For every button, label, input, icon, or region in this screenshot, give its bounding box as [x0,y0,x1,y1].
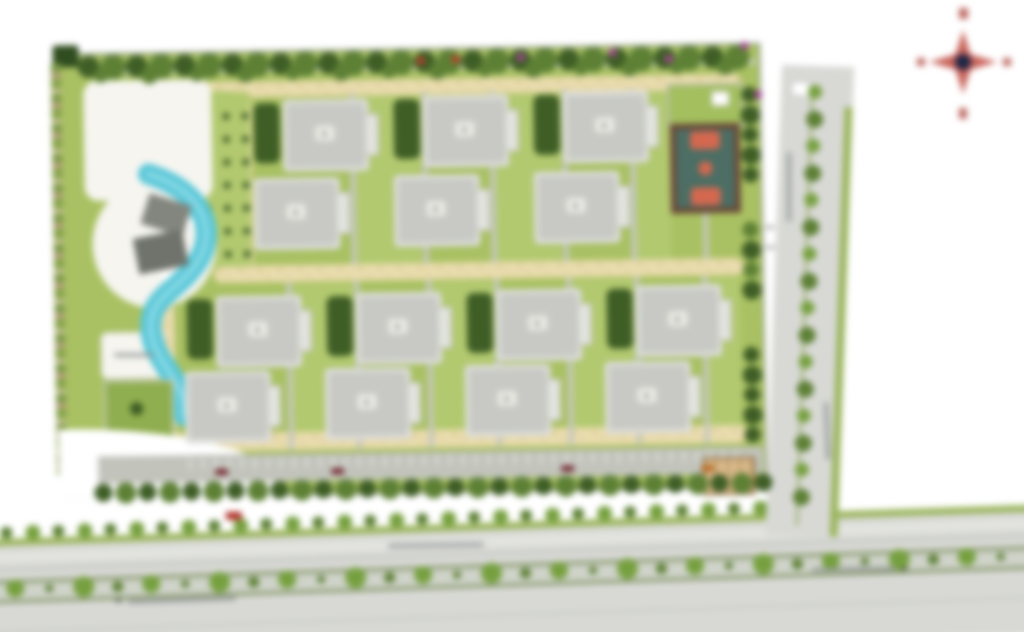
parking-stall-line [644,451,646,462]
compass-hub [955,54,971,70]
parking-stall-line [280,457,282,468]
tree-icon [138,483,156,501]
parking-stall-line [228,458,230,469]
tree-cluster [606,289,633,349]
entrance-lobby [577,303,593,345]
entrance-lobby [437,306,453,348]
tree-icon [731,472,752,493]
tree-icon [332,63,349,80]
parking-stall-line [371,456,373,467]
tree-icon [446,478,464,496]
parking-stall-line [319,456,321,467]
compass-rose-icon [915,8,1015,120]
roof-vent [322,131,327,136]
road-label-blurred [787,152,791,222]
tree-icon [643,474,664,495]
tree-icon [490,477,508,495]
parking-stall-line [436,455,438,466]
residential-building [563,91,648,162]
residential-building [395,175,480,246]
residential-building [356,293,441,364]
residential-building [186,371,271,442]
parked-car [701,465,714,471]
roof-vent [255,327,260,332]
entrance-lobby [335,192,351,234]
roof-vent [224,403,229,408]
roof-vent [462,127,467,132]
tree-icon [754,473,772,491]
tree-icon [379,478,400,499]
roof-vent [433,207,438,212]
tree-cluster [186,299,213,359]
parking-stall-line [566,453,568,464]
parking-stall-line [592,452,594,463]
parking-stall-line [293,457,295,468]
roof-vent [395,324,400,329]
parking-stall-line [449,454,451,465]
parking-stall-line [215,458,217,469]
residential-building [216,296,301,367]
entrance-lobby [546,379,562,421]
tree-icon [741,145,760,164]
residential-building [326,368,411,439]
flower-bed [517,53,525,61]
site-plan-image: ►◄ [0,0,1024,632]
tree-icon [555,475,576,496]
parking-stall-line [241,458,243,469]
residential-building [605,362,690,433]
tree-icon [226,482,244,500]
parking-stall-line [579,452,581,463]
parking-stall-line [475,454,477,465]
entrance-lobby [406,382,422,424]
tree-icon [599,474,620,495]
parking-stall-line [189,458,191,469]
roof-vent [602,123,607,128]
parked-car [561,465,574,471]
court-lawn [667,83,744,128]
tree-icon [524,60,541,77]
parking-stall-line [267,457,269,468]
tree-cluster [326,296,353,356]
flower-bed [452,55,460,63]
parking-stall-line [553,453,555,464]
parking-stall-line [397,455,399,466]
entrance-lobby [364,113,380,155]
tree-cluster [393,99,420,159]
tree-icon [478,63,492,77]
residential-building [255,178,340,249]
parking-stall-line [540,453,542,464]
residential-building [534,172,619,243]
parking-stall-line [488,454,490,465]
parking-stall-line [696,451,698,462]
parking-stall-line [527,453,529,464]
flower-bed [609,49,617,57]
tree-icon [314,480,332,498]
parking-stall-line [332,456,334,467]
parking-stall-line [358,456,360,467]
flower-bed [417,57,425,65]
flower-bed [740,42,748,50]
residential-building [423,95,508,166]
tree-icon [140,66,157,83]
parked-car [226,512,242,520]
dimension-tick [766,246,775,248]
parking-stall-line [423,455,425,466]
tree-cluster [533,95,560,155]
tree-icon [115,482,136,503]
parked-car [215,469,228,475]
parking-stall-line [306,457,308,468]
roof-vent [535,321,540,326]
roof-vent [293,210,298,215]
entrance-lobby [716,299,732,341]
tree-icon [578,476,596,494]
entrance-lobby [686,375,702,417]
dimension-tick [765,226,774,228]
parking-stall-line [631,452,633,463]
tree-icon [740,105,759,124]
entrance-lobby [503,109,519,151]
tree-icon [94,69,108,83]
parking-stall-line [202,458,204,469]
tree-icon [203,480,224,501]
residential-building [636,285,721,356]
tree-icon [666,475,684,493]
tree-icon [742,280,761,299]
tree-icon [182,482,200,500]
tree-icon [236,65,253,82]
entrance-lobby [643,105,659,147]
roof-vent [504,396,509,401]
residential-building [466,365,551,436]
tree-icon [159,481,180,502]
tree-icon [130,402,143,415]
tree-icon [742,365,761,384]
tree-icon [511,476,532,497]
tree-icon [358,480,376,498]
blurred-scene: ►◄ [0,0,1024,632]
parking-stall-line [670,451,672,462]
parking-stall-line [254,457,256,468]
roof-vent [675,317,680,322]
parking-stall-line [514,453,516,464]
tree-icon [94,484,112,502]
entrance-lobby [266,385,282,427]
parking-stall-line [683,451,685,462]
flower-bed [754,90,762,98]
road-label-blurred [114,353,154,357]
tree-icon [428,62,445,79]
tree-icon [716,57,733,74]
parking-stall-line [618,452,620,463]
entrance-lobby [615,186,631,228]
flower-bed [665,55,673,63]
tree-icon [622,475,640,493]
tree-cluster [253,103,280,163]
roof-vent [364,400,369,405]
tree-icon [423,477,444,498]
tree-icon [247,480,268,501]
tree-cluster [466,293,493,353]
tree-icon [687,473,708,494]
tree-icon [620,59,637,76]
parking-stall-line [501,454,503,465]
compass-letter-east [1003,58,1011,66]
parking-stall-line [384,455,386,466]
tree-icon [291,479,312,500]
roof-vent [573,203,578,208]
tree-icon [534,477,552,495]
tree-icon [402,479,420,497]
residential-site [0,0,1024,632]
roof-vent [644,393,649,398]
tree-icon [741,240,760,259]
tree-icon [335,478,356,499]
court-equipment-room [711,91,729,106]
parking-stall-line [605,452,607,463]
court-center-circle [698,161,712,175]
tree-icon [743,405,762,424]
parking-stall-line [462,454,464,465]
court-key-bottom [691,187,721,205]
entrance-lobby [475,189,491,231]
residential-building [496,289,581,360]
parked-car [331,468,344,474]
parking-stall-line [410,455,412,466]
compass-letter-south [959,108,967,119]
court-key-top [690,131,720,149]
tree-icon [467,476,488,497]
parking-stall-line [657,451,659,462]
tree-icon [270,481,288,499]
direction-arrow-icon: ◄ [114,597,121,606]
parking-stall-line [345,456,347,467]
entrance-lobby [297,310,313,352]
compass-letter-west [917,58,925,66]
compass-letter-north [959,8,968,19]
residential-building [283,100,368,171]
direction-arrow-icon: ► [902,565,909,574]
